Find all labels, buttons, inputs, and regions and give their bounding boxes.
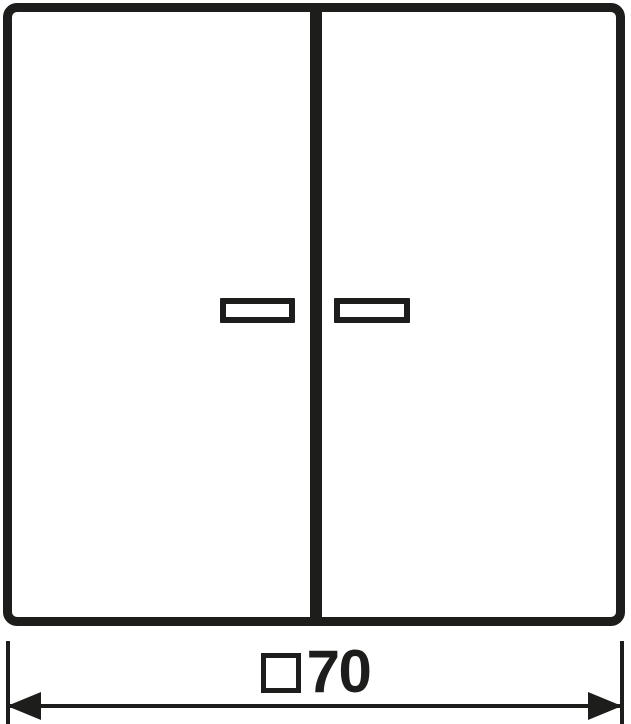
dimension-label: 70 [0,650,631,696]
rocker-divider-line [310,3,322,626]
square-symbol-icon [261,653,301,693]
right-lens-window [334,298,410,323]
dimension-value: 70 [307,642,371,702]
left-lens-window [220,298,295,323]
dimension-drawing: 70 [0,0,631,724]
right-arrowhead-icon [588,692,622,720]
left-arrowhead-icon [7,692,41,720]
